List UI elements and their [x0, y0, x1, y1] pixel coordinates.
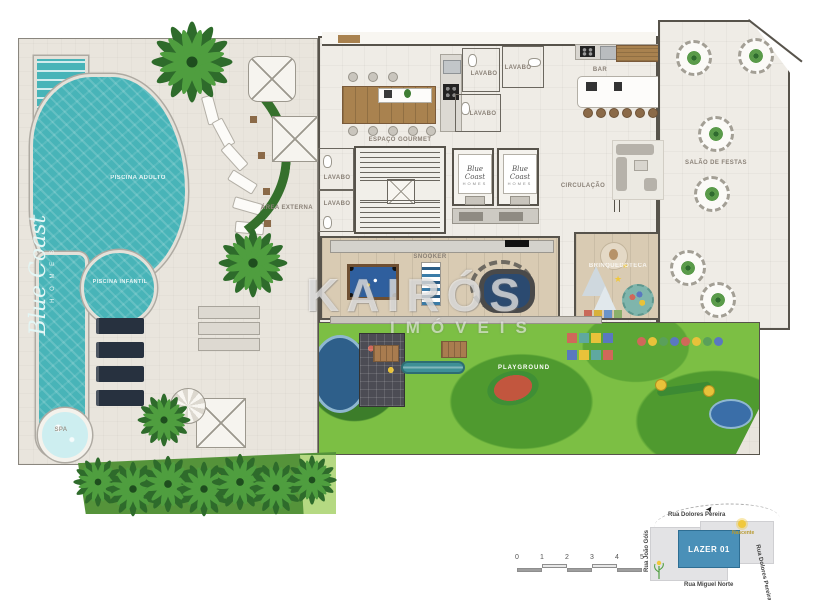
machine-box	[499, 212, 523, 221]
scale-tick: 0	[515, 554, 519, 561]
round-table	[676, 40, 712, 76]
slide	[401, 361, 465, 374]
tv-screen	[505, 240, 529, 247]
toy-box	[604, 310, 612, 318]
seesaw-handle	[703, 385, 715, 397]
scale-tick: 5	[640, 554, 644, 561]
hopscotch	[567, 333, 615, 365]
gazebo	[248, 56, 296, 102]
ball	[648, 337, 657, 346]
pool-round	[81, 250, 157, 326]
elevator-cab: Blue Coast HOMES	[458, 154, 492, 194]
pavilion	[272, 116, 318, 162]
lavabo-label: LAVABO	[324, 175, 351, 181]
sun-lounger-dark	[96, 366, 144, 382]
ball	[681, 337, 690, 346]
brand-script-text: Blue Coast	[28, 210, 50, 340]
elevator-shaft: Blue Coast HOMES	[452, 148, 494, 206]
hopscotch-square	[591, 350, 601, 360]
kids-room-label: BRINQUEDOTECA	[589, 263, 647, 269]
watermark-subtitle: IMÓVEIS	[390, 318, 546, 338]
sun-icon	[738, 520, 746, 528]
ball	[714, 337, 723, 346]
grass-mound	[484, 366, 542, 410]
sun-lounger-dark	[96, 342, 144, 358]
sofa	[616, 157, 627, 191]
ball	[670, 337, 679, 346]
toilet	[323, 155, 332, 168]
gourmet-label: ESPAÇO GOURMET	[369, 137, 432, 143]
toilet	[468, 54, 477, 67]
sun-lounger-dark	[96, 318, 144, 334]
lavabo-label: LAVABO	[324, 201, 351, 207]
round-table	[694, 176, 730, 212]
scale-tick: 2	[565, 554, 569, 561]
chair	[368, 126, 378, 136]
elevator-machine-room	[452, 208, 539, 224]
round-table	[670, 250, 706, 286]
scale-segment	[567, 568, 592, 572]
machine-box	[459, 212, 483, 221]
hopscotch-square	[567, 350, 577, 360]
teepee-tent	[594, 286, 616, 310]
bar-stove	[580, 46, 595, 57]
scale-segment	[592, 564, 617, 568]
star-toy: ★	[614, 274, 622, 285]
scale-segment	[617, 568, 642, 572]
bar-island-appliance	[614, 82, 622, 91]
pond	[709, 399, 753, 429]
hopscotch-square	[603, 350, 613, 360]
watermark: KAIRÓS IMÓVEIS	[306, 268, 546, 338]
round-table	[698, 116, 734, 152]
deck-steps	[198, 306, 260, 319]
chair	[408, 126, 418, 136]
bar-stool	[596, 108, 606, 118]
stair-flight	[360, 152, 440, 178]
toilet	[323, 216, 332, 229]
stairwell	[354, 146, 446, 234]
bar-stool	[609, 108, 619, 118]
party-hall-label: SALÃO DE FESTAS	[685, 160, 747, 166]
bar-stool	[648, 108, 658, 118]
elevator-logo-sub: HOMES	[459, 181, 491, 186]
watermark-title: KAIRÓS	[306, 268, 546, 322]
armchair	[644, 178, 657, 191]
counter-plant	[404, 89, 411, 98]
balcony-bench	[338, 35, 360, 43]
elevator-logo-sub: HOMES	[504, 181, 536, 186]
bar-stool	[583, 108, 593, 118]
hopscotch-square	[579, 350, 589, 360]
stair-rail	[360, 180, 440, 181]
lavabo-label: LAVABO	[471, 71, 498, 77]
stair-rail	[360, 200, 440, 201]
bar-stool	[622, 108, 632, 118]
deck-steps	[198, 322, 260, 335]
games-label: SNOOKER	[413, 254, 446, 260]
street-bottom-label: Rua Miguel Norte	[684, 582, 733, 588]
lazer-floor-label: LAZER 01	[688, 545, 730, 554]
hopscotch-square	[579, 333, 589, 343]
coffee-table	[634, 160, 648, 171]
toy-box	[614, 310, 622, 318]
ball	[692, 337, 701, 346]
playground-area	[318, 322, 760, 455]
sun-label: Nascente	[732, 530, 754, 536]
pool-brand-script: Blue Coast H O M E S	[28, 210, 64, 340]
ball	[703, 337, 712, 346]
stair-flight	[360, 202, 440, 228]
chair	[388, 72, 398, 82]
elevator-cab: Blue Coast HOMES	[503, 154, 537, 194]
floor-plan-canvas: PISCINA ADULTO PISCINA INFANTIL SPA Blue…	[0, 0, 825, 600]
round-table	[738, 38, 774, 74]
hopscotch-square	[603, 333, 613, 343]
bar-label: BAR	[593, 67, 607, 73]
scale-tick: 1	[540, 554, 544, 561]
kids-room: ★ ★	[574, 232, 662, 320]
elevator-logo: Blue Coast	[504, 165, 536, 181]
plant-icon	[652, 558, 666, 580]
pool-kids-label: PISCINA INFANTIL	[93, 279, 148, 285]
deck-steps	[198, 338, 260, 351]
bar-island-appliance	[586, 82, 597, 91]
hopscotch-square	[591, 333, 601, 343]
ball	[659, 337, 668, 346]
scale-tick: 3	[590, 554, 594, 561]
elevator-door	[510, 196, 530, 205]
chair	[388, 126, 398, 136]
lavabo-room	[318, 148, 354, 190]
spa-label: SPA	[54, 427, 67, 433]
hopscotch-square	[567, 333, 577, 343]
lavabo-label: LAVABO	[470, 111, 497, 117]
palm-tree	[214, 224, 292, 302]
round-table	[700, 282, 736, 318]
chair	[426, 126, 436, 136]
scale-bar: 0 1 2 3 4 5	[512, 552, 672, 582]
chair	[348, 126, 358, 136]
bar-stool	[635, 108, 645, 118]
ball	[637, 337, 646, 346]
lavabo-label: LAVABO	[505, 65, 532, 71]
sofa	[616, 144, 654, 155]
scale-segment	[542, 564, 567, 568]
scale-tick: 4	[615, 554, 619, 561]
elevator-shaft: Blue Coast HOMES	[497, 148, 539, 206]
garden-bench	[373, 345, 399, 362]
street-top-label: Rua Dolores Pereira	[668, 512, 725, 518]
scale-segment	[517, 568, 542, 572]
seesaw-handle	[655, 379, 667, 391]
counter-appliance	[384, 90, 392, 98]
kitchen-sink	[443, 60, 461, 74]
palm-tree	[146, 16, 238, 108]
elevator-door	[465, 196, 485, 205]
chair	[348, 72, 358, 82]
chair	[368, 72, 378, 82]
outdoor-area-label: ÁREA EXTERNA	[261, 205, 313, 211]
playground-label: PLAYGROUND	[498, 365, 550, 371]
lavabo-room	[462, 48, 500, 92]
play-rug	[622, 284, 654, 316]
ball-run	[637, 337, 723, 349]
bar-island	[577, 76, 663, 108]
teddy-bear	[609, 249, 618, 260]
elevator-logo: Blue Coast	[459, 165, 491, 181]
circulation-label: CIRCULAÇÃO	[561, 183, 605, 189]
palm-tree	[134, 390, 194, 450]
garden-bench	[441, 341, 467, 358]
bar-wood-counter	[616, 45, 660, 62]
palm-tree	[284, 452, 340, 508]
lazer-floor-highlight: LAZER 01	[678, 530, 740, 568]
